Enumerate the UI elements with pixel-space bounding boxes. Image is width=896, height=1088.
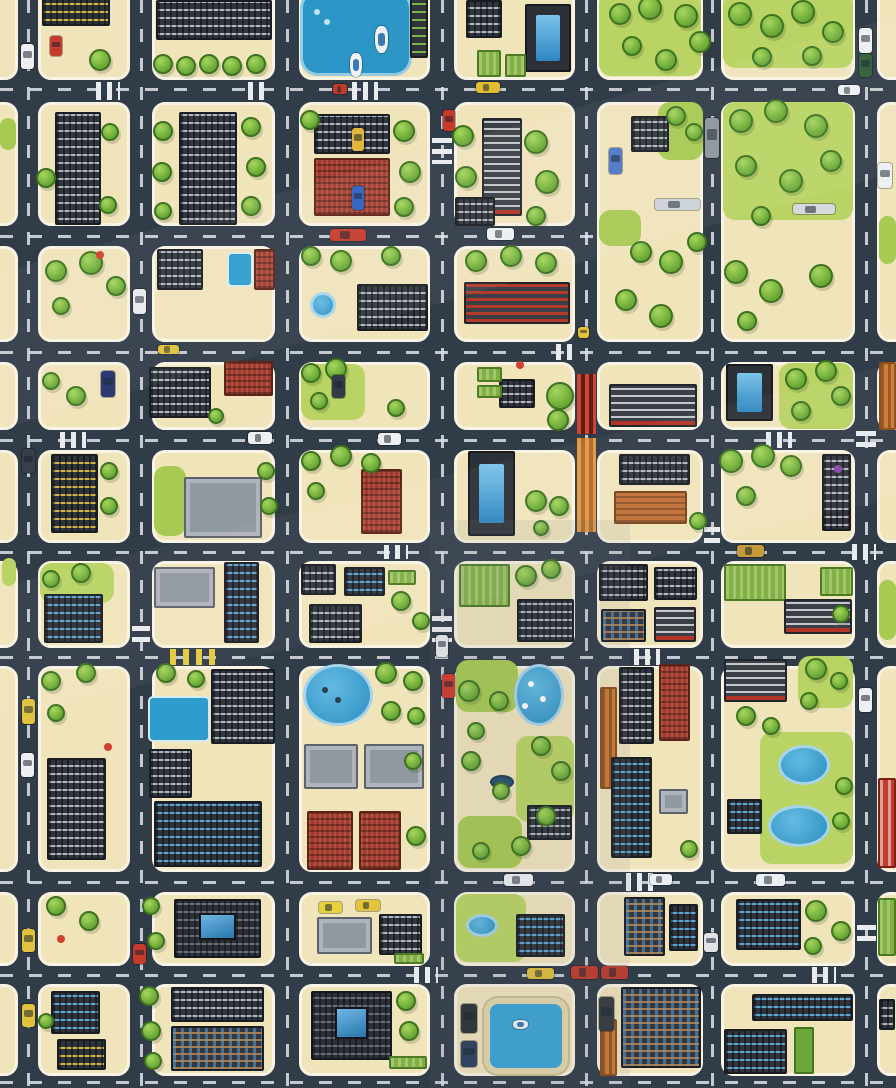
tree [760,14,784,38]
tree [42,372,60,390]
grass-patch [879,580,896,640]
building-orangestripe [879,362,896,430]
building-gridB [669,904,698,951]
tree [399,161,421,183]
tree [800,692,818,710]
road-center-dashes [286,0,289,1088]
small-dot [57,935,65,943]
building-grid [211,669,275,744]
tree [45,260,67,282]
small-dot [522,703,528,709]
crosswalk [384,545,408,559]
car [737,545,764,557]
small-dot [314,9,320,15]
tree [820,150,842,172]
tree [106,276,126,296]
building-flat [317,917,372,954]
tree [780,455,802,477]
tree [804,937,822,955]
tree [835,777,853,795]
building-gridY [57,1039,106,1070]
car [442,674,455,698]
tree [71,563,91,583]
building-grid [149,749,192,798]
car [22,699,35,724]
building-grid [47,758,106,860]
pond [768,805,830,847]
tree [100,462,118,480]
building-greenstripe [820,567,853,596]
building-mixed [601,609,646,642]
grass-patch [0,118,16,150]
tree [831,386,851,406]
building-flat [154,567,215,608]
tree [301,246,321,266]
building-greenstripe [459,564,510,607]
tree [779,169,803,193]
road-center-dashes [140,0,143,1088]
building-gridB [44,594,103,643]
tree [391,591,411,611]
tree [46,896,66,916]
round-pool [310,292,336,318]
tree [187,670,205,688]
tree [531,736,551,756]
tree [66,386,86,406]
car [443,110,455,131]
tree [153,54,173,74]
building-redstripe [878,778,896,868]
car [21,753,34,777]
tree [622,36,642,56]
tree [76,663,96,683]
road-center-dashes [585,0,588,1088]
tree [452,125,474,147]
car [527,968,554,979]
building-grid [157,249,203,290]
tree [791,401,811,421]
crosswalk [432,138,452,164]
tree [465,250,487,272]
tree [831,921,851,941]
tree [785,368,807,390]
tree [815,360,837,382]
building-mixed [171,1026,264,1071]
car [655,199,700,210]
car [333,84,347,94]
tree [535,252,557,274]
tree [375,662,397,684]
tree [805,658,827,680]
car [352,128,364,151]
tree [489,691,509,711]
tree [472,842,490,860]
tree [609,3,631,25]
car [21,44,34,69]
crosswalk [856,431,876,449]
car [133,944,146,964]
building-grid [466,0,502,38]
tree [330,250,352,272]
tree [381,701,401,721]
building-gridY [42,0,110,26]
car [101,371,115,397]
tree [406,826,426,846]
tree [89,49,111,71]
boat [350,53,362,77]
small-dot [834,465,842,473]
small-dot [324,19,330,25]
city-block [0,0,18,80]
tree [500,245,522,267]
pool [148,696,210,742]
tree [729,109,753,133]
car [158,345,179,354]
building-grid [499,379,535,408]
tree [515,565,537,587]
tree [759,279,783,303]
city-block [877,984,896,1076]
crosswalk [248,82,268,100]
building-grid [156,0,272,40]
tree [655,49,677,71]
tree [199,54,219,74]
building-brick [361,469,402,534]
pond [303,664,373,726]
tree [381,246,401,266]
small-dot [104,743,112,751]
building-flat [304,744,358,789]
tree [458,680,480,702]
tree [735,155,757,177]
tree [728,2,752,26]
crosswalk [132,626,150,648]
tree [152,162,172,182]
building-gridB [516,914,565,957]
tree [805,900,827,922]
tree [659,250,683,274]
building-grid [179,112,237,225]
road-center-dashes [0,1081,896,1084]
road-center-dashes [0,974,896,977]
building-gridB [752,994,853,1021]
car [601,966,628,979]
tree [551,761,571,781]
building-brick [307,811,353,870]
car [504,874,533,886]
tree [736,706,756,726]
tree [142,897,160,915]
tree [38,1013,54,1029]
tree [246,54,266,74]
car [859,688,872,712]
building-grid [599,564,648,601]
tree [407,707,425,725]
building-greenstripe [724,564,786,601]
building-grid [619,667,654,744]
car [319,902,342,913]
building-gridB [736,899,801,950]
crosswalk [414,967,438,983]
tree [751,444,775,468]
tree [176,56,196,76]
car [838,85,860,95]
car [571,966,598,979]
building-grid [619,454,690,485]
car [22,929,35,952]
car [133,289,146,314]
car [705,118,719,158]
tree [536,806,556,826]
city-block [0,984,18,1076]
building-glass [468,451,515,536]
road-center-dashes [0,439,896,442]
tree [804,114,828,138]
car [756,874,785,886]
tree [393,120,415,142]
tree [649,304,673,328]
building-grid [879,999,895,1030]
small-dot [528,681,534,687]
crosswalk [857,925,876,947]
pond [466,914,498,937]
tree [666,106,686,126]
tree [455,166,477,188]
building-striped [609,384,697,427]
grass-patch [154,466,186,536]
small-dot [322,687,328,693]
tree [154,202,172,220]
car [461,1041,477,1067]
building-gridB [51,991,100,1034]
tree [549,496,569,516]
city-block [0,362,18,430]
tree [301,451,321,471]
building-brick [359,811,401,870]
building-grid [301,564,336,595]
tree [310,392,328,410]
tree [222,56,242,76]
car [859,54,872,77]
building-striped [654,607,696,642]
car [599,997,614,1031]
tree [802,46,822,66]
building-screen [174,899,261,958]
building-greenstripe [388,570,416,585]
tree [156,663,176,683]
yellow-crosswalk [170,649,216,665]
tree [404,752,422,770]
car [609,148,622,174]
tree [246,157,266,177]
small-dot [516,361,524,369]
tree [153,121,173,141]
grass-patch [2,558,16,586]
building-screen [311,991,392,1060]
city-map [0,0,896,1088]
building-flat [659,789,688,814]
tree [461,751,481,771]
car [378,433,401,445]
tree [546,382,574,410]
tree [241,117,261,137]
tree [147,932,165,950]
building-brick [254,249,275,290]
building-orange [614,491,687,524]
building-glass [726,364,773,421]
car [248,432,272,444]
car [330,229,366,241]
pond [778,745,830,785]
tree [736,486,756,506]
building-grid [379,914,422,955]
grass-patch [879,216,896,264]
building-gridB [224,562,259,643]
building-greenstripe [505,54,526,77]
crosswalk [634,649,660,665]
car [22,449,35,473]
tree [737,311,757,331]
building-gridB [724,1029,787,1074]
tree [361,453,381,473]
building-grid [517,599,574,642]
tree [830,672,848,690]
building-striped [724,659,787,702]
small-dot [540,696,546,702]
tree [101,123,119,141]
tree [330,445,352,467]
building-greenstripe [477,50,501,77]
tree [674,4,698,28]
tree [139,986,159,1006]
building-gridB [344,567,385,596]
tree [36,168,56,188]
tree [301,363,321,383]
building-grid [55,112,101,225]
building-gridY [51,454,98,533]
tree [300,110,320,130]
tree [41,671,61,691]
building-mixed [621,987,701,1068]
tree [403,671,423,691]
building-greenbar [794,1027,814,1074]
tree [689,512,707,530]
tree [832,605,850,623]
tree [399,1021,419,1041]
tree [412,612,430,630]
building-gridB [611,757,652,858]
building-grid [171,987,264,1022]
building-greenstripe [878,898,896,956]
building-grid [455,197,495,226]
tree [533,520,549,536]
swimming-pool [484,998,568,1074]
tree [141,1021,161,1041]
car [436,635,448,657]
tree [241,196,261,216]
boat [513,1020,528,1029]
building-greenwin [410,0,428,58]
building-greenstripe [477,385,502,398]
tree [257,462,275,480]
building-grid [654,567,697,600]
tree [260,497,278,515]
building-brick [224,361,273,396]
tree [394,197,414,217]
tree [492,782,510,800]
building-grid [357,284,428,331]
building-grid [309,604,362,643]
car [356,900,380,911]
car [461,1004,477,1033]
crosswalk [556,344,578,360]
building-grid [631,116,669,152]
tree [541,559,561,579]
crosswalk [352,82,378,100]
tree [680,840,698,858]
car [332,375,345,398]
tree [47,704,65,722]
car [578,327,589,338]
building-gridB [154,801,262,867]
tree [79,911,99,931]
crosswalk [812,967,836,983]
car [704,933,718,952]
pond [514,664,564,726]
crosswalk [852,544,876,560]
car [650,874,672,885]
tree [526,206,546,226]
tree [752,47,772,67]
city-block [0,666,18,872]
tree [687,232,707,252]
car [859,28,872,53]
pool [227,252,253,287]
car [352,186,364,210]
car [878,163,892,188]
crosswalk [60,432,86,448]
tree [762,717,780,735]
city-block [877,0,896,80]
city-block [0,450,18,543]
tree [630,241,652,263]
small-dot [335,697,341,703]
building-glass [525,4,571,72]
tree [52,297,70,315]
car [22,1004,35,1027]
tree [809,264,833,288]
tree [822,21,844,43]
tree [547,409,569,431]
small-dot [96,251,104,259]
road-center-dashes [0,351,896,354]
tree [99,196,117,214]
tree [764,99,788,123]
grass-patch [599,210,641,246]
road-center-dashes [27,0,30,1088]
building-greenstripe [394,953,424,964]
boat [375,26,388,53]
tree [719,449,743,473]
tree [525,490,547,512]
tree [535,170,559,194]
tree [387,399,405,417]
building-greenstripe [389,1056,427,1069]
car [476,82,500,93]
car [487,228,514,240]
tree [42,570,60,588]
tree [791,0,815,24]
